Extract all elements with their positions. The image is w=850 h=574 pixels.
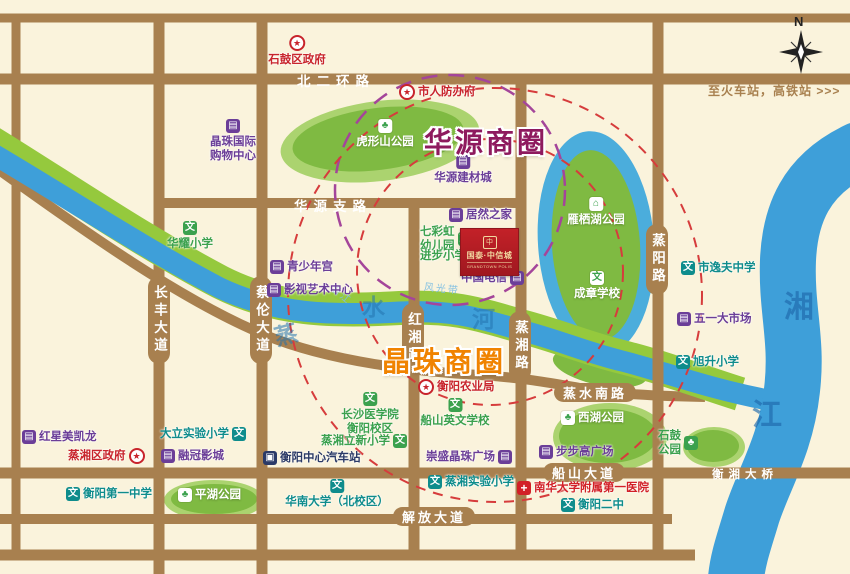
xusheng-primary-label: 旭升小学 <box>693 355 739 369</box>
compass-north-label: N <box>794 14 803 29</box>
hengyang-agriculture-bureau-icon: ★ <box>418 379 434 395</box>
road-label-jiefang-avenue: 解放大道 <box>393 507 475 526</box>
zhengxiang-lixin-primary-icon: 文 <box>393 434 407 448</box>
nanhua-univ-first-hospital-label: 南华大学附属第一医院 <box>534 481 649 495</box>
xiangjiang-river <box>736 150 850 574</box>
xihu-park-icon: ♣ <box>561 411 575 425</box>
road-label-changfeng-avenue: 长丰大道 <box>148 276 170 364</box>
chengzhang-school-icon: 文 <box>590 271 604 285</box>
poi-chongsheng-jingzhu-plaza: 崇盛晶珠广场▤ <box>426 450 512 464</box>
poi-zhengxiang-district-gov: 蒸湘区政府★ <box>68 448 145 464</box>
poi-xihu-park: ♣西湖公园 <box>561 411 624 425</box>
film-art-center-label: 影视艺术中心 <box>284 283 353 297</box>
poi-shigu-park: 石鼓公园♣ <box>658 429 698 458</box>
rongguan-cinema-icon: ▤ <box>161 449 175 463</box>
huxingshan-park-label: 虎形山公园 <box>356 135 414 149</box>
central-bus-station-label: 衡阳中心汽车站 <box>280 451 361 465</box>
changsha-medical-college-label: 长沙医学院衡阳校区 <box>341 408 399 437</box>
road-label-hengxiang-bridge: 衡湘大桥 <box>712 466 778 482</box>
to-railway-station-note: 至火车站，高铁站 >>> <box>708 82 840 99</box>
road-label-beierhuan-road: 北二环路 <box>297 70 375 90</box>
poi-rongguan-cinema: ▤融冠影城 <box>161 449 224 463</box>
shigu-district-gov-icon: ★ <box>289 35 305 51</box>
project-subtitle: GRANDTOWN POLIS <box>467 262 513 269</box>
shigu-park-label: 石鼓公园 <box>658 429 681 458</box>
hengyang-no1-high-icon: 文 <box>66 487 80 501</box>
dali-experimental-primary-icon: 文 <box>232 427 246 441</box>
juranzhijia-label: 居然之家 <box>466 208 512 222</box>
poi-youth-palace: ▤青少年宫 <box>270 260 333 274</box>
project-marker-guotai-zhongxincheng: 中 国泰·中信城 GRANDTOWN POLIS <box>460 228 519 276</box>
huayuan-business-circle-label: 华源商圈 <box>424 121 548 161</box>
zhengxiang-district-gov-icon: ★ <box>129 448 145 464</box>
poi-zhengxiang-lixin-primary: 蒸湘立新小学文 <box>321 434 407 448</box>
redstar-macalline-icon: ▤ <box>22 430 36 444</box>
juranzhijia-icon: ▤ <box>449 208 463 222</box>
poi-huanan-univ-north-campus: 文华南大学（北校区） <box>285 479 389 509</box>
poi-jingzhu-intl-mall: ▤晶珠国际购物中心 <box>210 119 256 164</box>
yifu-middle-school-label: 市逸夫中学 <box>698 261 756 275</box>
poi-chuanshan-english-school: 文船山英文学校 <box>421 398 490 428</box>
rongguan-cinema-label: 融冠影城 <box>178 449 224 463</box>
poi-shigu-district-gov: ★石鼓区政府 <box>268 35 326 67</box>
hengyang-no1-high-label: 衡阳第一中学 <box>83 487 152 501</box>
youth-palace-icon: ▤ <box>270 260 284 274</box>
project-name: 国泰·中信城 <box>467 250 513 261</box>
redstar-macalline-label: 红星美凯龙 <box>39 430 97 444</box>
road-label-chuanshan-avenue: 船山大道 <box>543 463 625 482</box>
road-label-huayuan-branch-road: 华源支路 <box>294 195 372 215</box>
huanan-univ-north-campus-label: 华南大学（北校区） <box>285 495 389 509</box>
road-label-zhengshui-south-road: 蒸水南路 <box>554 383 636 402</box>
bubugao-plaza-icon: ▤ <box>539 445 553 459</box>
yanqihu-park-label: 雁栖湖公园 <box>567 213 625 227</box>
changsha-medical-college-icon: 文 <box>363 392 377 406</box>
poi-dali-experimental-primary: 大立实验小学文 <box>160 427 246 441</box>
chuanshan-english-school-icon: 文 <box>448 398 462 412</box>
civil-defense-office-label: 市人防办府 <box>418 85 476 99</box>
hengyang-no2-middle-icon: 文 <box>561 498 575 512</box>
poi-huxingshan-park: ♣虎形山公园 <box>356 119 414 149</box>
civil-defense-office-icon: ★ <box>399 84 415 100</box>
xiangjiang-river-char-1: 江 <box>752 390 782 434</box>
project-logo-icon: 中 <box>483 236 497 249</box>
shigu-park-icon: ♣ <box>684 436 698 450</box>
bubugao-plaza-label: 步步高广场 <box>556 445 614 459</box>
pinghu-park-icon: ♣ <box>178 488 192 502</box>
zhengxiang-experimental-primary-icon: 文 <box>428 475 442 489</box>
yanqihu-park-icon: ⌂ <box>589 197 603 211</box>
poi-redstar-macalline: ▤红星美凯龙 <box>22 430 97 444</box>
poi-changsha-medical-college: 文长沙医学院衡阳校区 <box>341 392 399 437</box>
pinghu-park-label: 平湖公园 <box>195 488 241 502</box>
poi-yifu-middle-school: 文市逸夫中学 <box>681 261 756 275</box>
film-art-center-icon: ▤ <box>267 283 281 297</box>
poi-huayao-primary: 文华耀小学 <box>167 221 213 251</box>
wuyi-market-label: 五一大市场 <box>694 312 752 326</box>
shigu-district-gov-label: 石鼓区政府 <box>268 53 326 67</box>
poi-hengyang-no2-middle: 文衡阳二中 <box>561 498 624 512</box>
jingzhu-intl-mall-icon: ▤ <box>226 119 240 133</box>
wuyi-market-icon: ▤ <box>677 312 691 326</box>
poi-zhengxiang-experimental-primary: 文蒸湘实验小学 <box>428 475 514 489</box>
jingzhu-business-circle-label: 晶珠商圈 <box>382 340 506 380</box>
road-label-zhengxiang-road: 蒸湘路 <box>509 311 531 382</box>
poi-hengyang-agriculture-bureau: ★衡阳农业局 <box>418 379 495 395</box>
jingzhu-intl-mall-label: 晶珠国际购物中心 <box>210 135 256 164</box>
central-bus-station-icon: ▣ <box>263 451 277 465</box>
huanan-univ-north-campus-icon: 文 <box>330 479 344 493</box>
poi-film-art-center: ▤影视艺术中心 <box>267 283 353 297</box>
huayao-primary-icon: 文 <box>183 221 197 235</box>
dali-experimental-primary-label: 大立实验小学 <box>160 427 229 441</box>
xihu-park-label: 西湖公园 <box>578 411 624 425</box>
poi-civil-defense-office: ★市人防办府 <box>399 84 476 100</box>
poi-wuyi-market: ▤五一大市场 <box>677 312 752 326</box>
huayao-primary-label: 华耀小学 <box>167 237 213 251</box>
zhengshui-river-char-2: 河 <box>472 300 495 334</box>
yifu-middle-school-icon: 文 <box>681 261 695 275</box>
xiangjiang-river-char-0: 湘 <box>784 282 814 326</box>
zhengxiang-experimental-primary-label: 蒸湘实验小学 <box>445 475 514 489</box>
chengzhang-school-label: 成章学校 <box>574 287 620 301</box>
hengyang-agriculture-bureau-label: 衡阳农业局 <box>437 380 495 394</box>
chongsheng-jingzhu-plaza-icon: ▤ <box>498 450 512 464</box>
poi-hengyang-no1-high: 文衡阳第一中学 <box>66 487 152 501</box>
huxingshan-park-icon: ♣ <box>378 119 392 133</box>
poi-xusheng-primary: 文旭升小学 <box>676 355 739 369</box>
poi-bubugao-plaza: ▤步步高广场 <box>539 445 614 459</box>
huayuan-building-materials-label: 华源建材城 <box>434 171 492 185</box>
chongsheng-jingzhu-plaza-label: 崇盛晶珠广场 <box>426 450 495 464</box>
vicinity-map: N 至火车站，高铁站 >>> 华源商圈 晶珠商圈 中 国泰·中信城 GRANDT… <box>0 0 850 574</box>
zhengxiang-lixin-primary-label: 蒸湘立新小学 <box>321 434 390 448</box>
xusheng-primary-icon: 文 <box>676 355 690 369</box>
poi-central-bus-station: ▣衡阳中心汽车站 <box>263 451 361 465</box>
youth-palace-label: 青少年宫 <box>287 260 333 274</box>
zhengshui-river-char-1: 水 <box>362 288 385 322</box>
road-label-zhengyang-road: 蒸阳路 <box>646 224 668 295</box>
poi-juranzhijia: ▤居然之家 <box>449 208 512 222</box>
compass-icon <box>779 30 823 74</box>
nanhua-univ-first-hospital-icon: + <box>517 481 531 495</box>
poi-pinghu-park: ♣平湖公园 <box>178 488 241 502</box>
hengyang-no2-middle-label: 衡阳二中 <box>578 498 624 512</box>
zhengxiang-district-gov-label: 蒸湘区政府 <box>68 449 126 463</box>
poi-yanqihu-park: ⌂雁栖湖公园 <box>567 197 625 227</box>
chuanshan-english-school-label: 船山英文学校 <box>421 414 490 428</box>
poi-nanhua-univ-first-hospital: +南华大学附属第一医院 <box>517 481 649 495</box>
poi-chengzhang-school: 文成章学校 <box>574 271 620 301</box>
